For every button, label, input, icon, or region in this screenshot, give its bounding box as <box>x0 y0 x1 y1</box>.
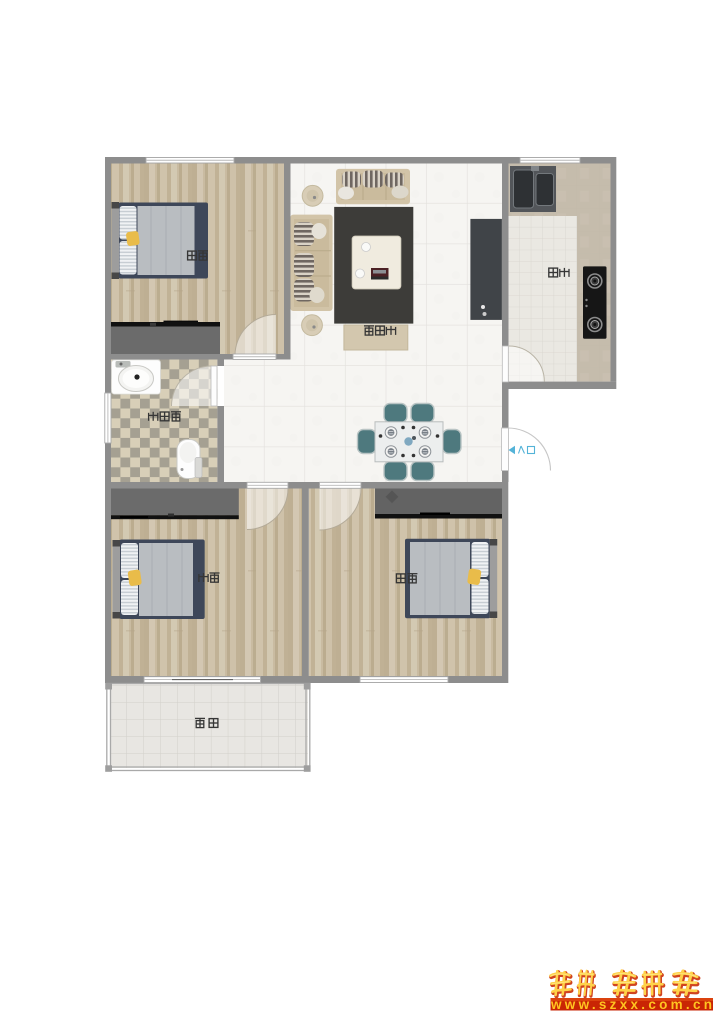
svg-text:www.szxx.com.cn: www.szxx.com.cn <box>550 997 712 1012</box>
